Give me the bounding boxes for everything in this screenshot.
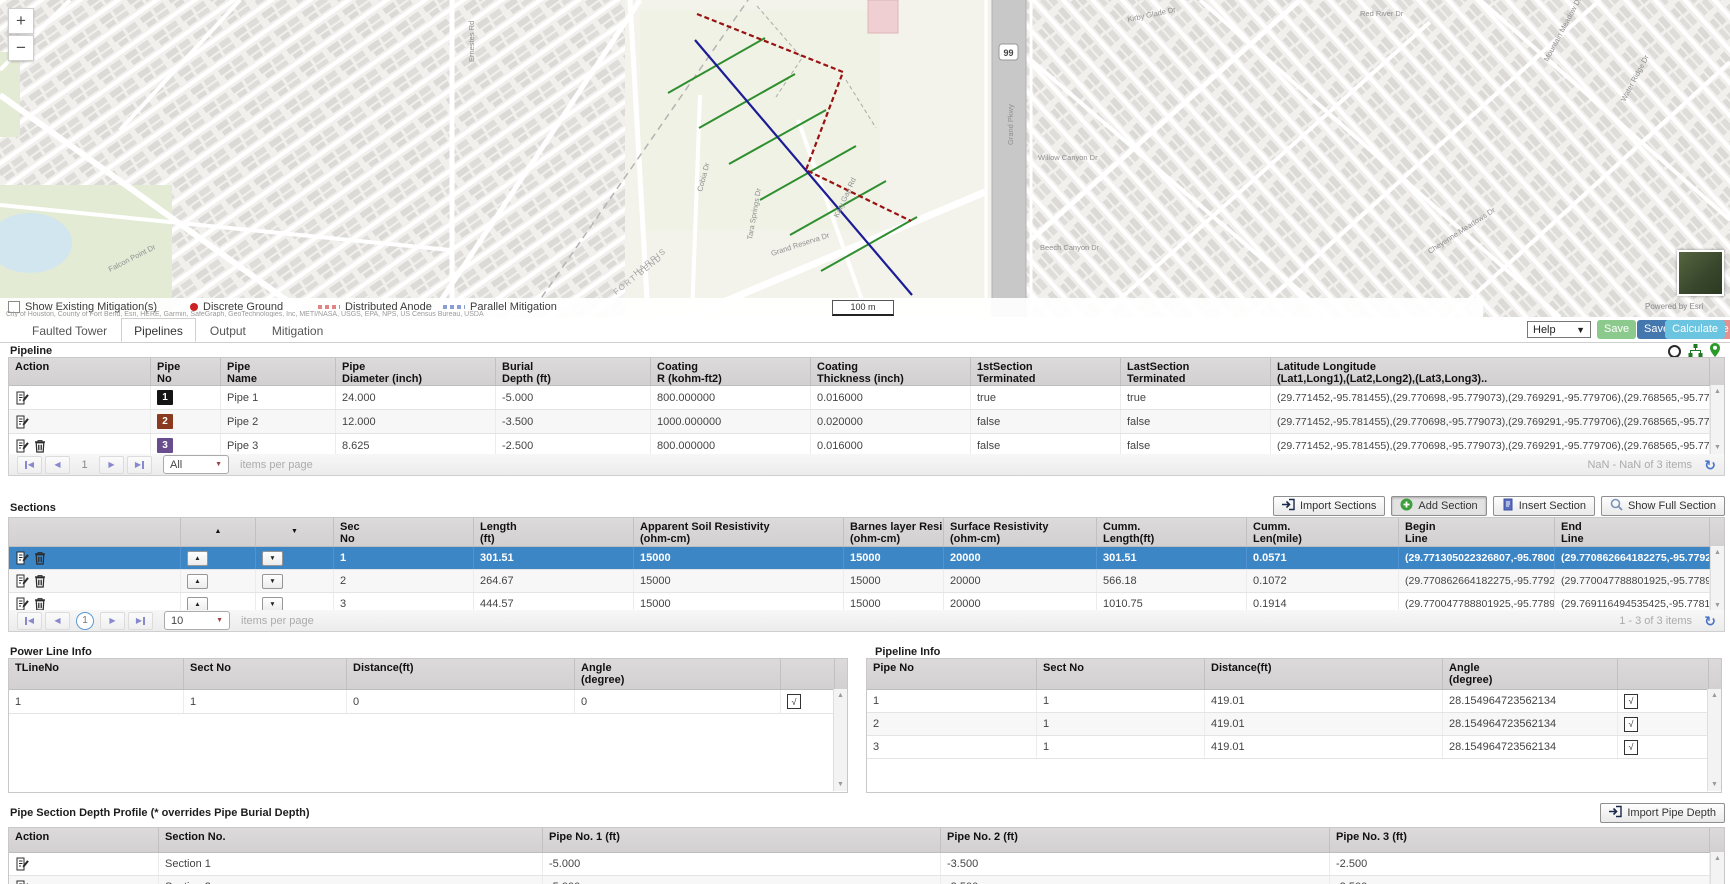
- column-header: Action: [9, 828, 159, 852]
- column-header: [9, 518, 181, 546]
- cell: 15000: [634, 570, 844, 592]
- column-header: TLineNo: [9, 659, 184, 689]
- column-header: Section No.: [159, 828, 543, 852]
- table-row[interactable]: 1100√: [9, 690, 847, 714]
- current-page[interactable]: 1: [73, 457, 96, 473]
- help-select[interactable]: Help ▼: [1527, 321, 1591, 338]
- cell: Section 1: [159, 853, 543, 875]
- column-header: PipeDiameter (inch): [336, 358, 496, 385]
- cell: (29.770862664182275,-95.77927667891853): [1399, 570, 1555, 592]
- scroll-down-arrow[interactable]: ▼: [834, 781, 847, 788]
- column-header: Cumm.Length(ft): [1097, 518, 1247, 546]
- pipe-no-cell: 2: [151, 410, 221, 433]
- edit-icon[interactable]: [15, 439, 29, 453]
- chevron-down-icon: ▼: [216, 617, 223, 624]
- table-row[interactable]: Section 2-5.000-3.500-2.500: [9, 876, 1724, 884]
- page-size-value: All: [170, 459, 182, 471]
- items-per-page-label: items per page: [241, 615, 314, 627]
- cell: -3.500: [941, 853, 1330, 875]
- map-canvas: 99 Ernestes RdCobia DrKaty Gap RdGrand P…: [0, 0, 1730, 317]
- tab-pipelines[interactable]: Pipelines: [121, 318, 196, 342]
- column-header: Pipe No. 2 (ft): [941, 828, 1330, 852]
- column-header: CoatingThickness (inch): [811, 358, 971, 385]
- scroll-up-arrow[interactable]: ▲: [1708, 692, 1721, 699]
- table-row[interactable]: Section 1-5.000-3.500-2.500: [9, 853, 1724, 876]
- import-sections-button[interactable]: Import Sections: [1273, 496, 1385, 516]
- insert-icon: [1502, 498, 1514, 514]
- map-attribution: City of Houston, County of Fort Bend, Es…: [6, 311, 1106, 317]
- table-header-row: ActionSection No.Pipe No. 1 (ft)Pipe No.…: [9, 828, 1724, 853]
- column-header: PipeName: [221, 358, 336, 385]
- edit-icon[interactable]: [15, 391, 29, 405]
- cell: 1: [867, 690, 1037, 712]
- cell: 419.01: [1205, 713, 1443, 735]
- cell: 20000: [944, 570, 1097, 592]
- column-header: ▲: [181, 518, 256, 546]
- cell: false: [1121, 410, 1271, 433]
- move-down-cell: ▼: [256, 570, 334, 592]
- app-root: 99 Ernestes RdCobia DrKaty Gap RdGrand P…: [0, 0, 1730, 884]
- mag-icon: [1610, 498, 1623, 514]
- cell: 24.000: [336, 386, 496, 409]
- cell: 15000: [634, 547, 844, 569]
- cell: 1: [1037, 713, 1205, 735]
- cell: true: [1121, 386, 1271, 409]
- pipe-no-cell: 1: [151, 386, 221, 409]
- insert-section-button[interactable]: Insert Section: [1493, 496, 1595, 516]
- cell: 1: [1037, 690, 1205, 712]
- column-header: Pipe No. 1 (ft): [543, 828, 941, 852]
- cell: 15000: [844, 547, 944, 569]
- action-cell: [9, 410, 151, 433]
- action-cell: [9, 853, 159, 875]
- column-header: Sect No: [184, 659, 347, 689]
- column-header: Cumm.Len(mile): [1247, 518, 1399, 546]
- powered-by-esri: Powered by Esri: [1645, 302, 1703, 311]
- table-row[interactable]: 1Pipe 124.000-5.000800.0000000.016000tru…: [9, 386, 1724, 410]
- vertical-scrollbar[interactable]: ▲▼: [1710, 852, 1724, 884]
- table-body: Section 1-5.000-3.500-2.500Section 2-5.0…: [9, 853, 1724, 884]
- column-header: SecNo: [334, 518, 474, 546]
- move-up-cell: ▲: [181, 547, 256, 569]
- column-header: CoatingR (kohm-ft2): [651, 358, 811, 385]
- pager-info: NaN - NaN of 3 items: [1587, 459, 1692, 471]
- locate-check-button[interactable]: √: [1624, 717, 1638, 732]
- column-header: Distance(ft): [1205, 659, 1443, 689]
- pipeline-table: ActionPipeNoPipeNamePipeDiameter (inch)B…: [8, 357, 1725, 456]
- map[interactable]: 99 Ernestes RdCobia DrKaty Gap RdGrand P…: [0, 0, 1730, 317]
- cell: 28.154964723562134: [1443, 690, 1618, 712]
- scroll-down-arrow[interactable]: ▼: [1711, 444, 1724, 451]
- highway-shield-label: 99: [1003, 48, 1013, 58]
- cell: 1000.000000: [651, 410, 811, 433]
- save-button[interactable]: Save: [1597, 320, 1636, 339]
- import-icon: [1282, 498, 1295, 514]
- cell: 3: [867, 736, 1037, 758]
- table-row[interactable]: 11419.0128.154964723562134√: [867, 690, 1721, 713]
- scroll-up-arrow[interactable]: ▲: [834, 692, 847, 699]
- scroll-up-arrow[interactable]: ▲: [1711, 549, 1724, 556]
- edit-icon[interactable]: [15, 551, 29, 565]
- import-pipe-depth-label: Import Pipe Depth: [1627, 807, 1716, 819]
- move-down-button[interactable]: ▼: [262, 551, 283, 566]
- cell: 28.154964723562134: [1443, 713, 1618, 735]
- next-page-button[interactable]: ▶: [99, 456, 124, 474]
- cell: 264.67: [474, 570, 634, 592]
- column-header: Angle(degree): [575, 659, 781, 689]
- table-header-row: ▲▼SecNoLength(ft)Apparent Soil Resistivi…: [9, 518, 1724, 547]
- last-page-button[interactable]: ▶: [128, 612, 153, 630]
- add-section-button[interactable]: Add Section: [1391, 496, 1486, 516]
- items-per-page-label: items per page: [240, 459, 313, 471]
- sections-section-title: Sections: [10, 502, 56, 514]
- edit-icon[interactable]: [15, 880, 29, 884]
- action-cell: [9, 547, 181, 569]
- cell: 301.51: [1097, 547, 1247, 569]
- locate-check-button[interactable]: √: [1624, 740, 1638, 755]
- cell: 800.000000: [651, 386, 811, 409]
- action-cell: [9, 570, 181, 592]
- distributed-anode-marker: [318, 305, 340, 309]
- edit-icon[interactable]: [15, 415, 29, 429]
- street-label: Grand Pkwy: [1006, 104, 1015, 145]
- cell: 15000: [844, 570, 944, 592]
- street-label: Willow Canyon Dr: [1038, 153, 1098, 162]
- cell: -3.500: [941, 876, 1330, 884]
- scroll-up-arrow[interactable]: ▲: [1711, 388, 1724, 395]
- column-header: PipeNo: [151, 358, 221, 385]
- cell: Section 2: [159, 876, 543, 884]
- table-header-row: Pipe NoSect NoDistance(ft)Angle(degree): [867, 659, 1721, 690]
- cell: -5.000: [496, 386, 651, 409]
- cell: -2.500: [1330, 853, 1710, 875]
- cell: 566.18: [1097, 570, 1247, 592]
- cell: 0.016000: [811, 386, 971, 409]
- previous-page-button[interactable]: ◀: [45, 612, 70, 630]
- vertical-scrollbar[interactable]: ▲▼: [833, 689, 847, 791]
- scroll-down-arrow[interactable]: ▼: [1708, 781, 1721, 788]
- move-up-cell: ▲: [181, 570, 256, 592]
- cell: 1: [184, 690, 347, 713]
- column-header: [781, 659, 835, 689]
- add-section-button-label: Add Section: [1418, 500, 1477, 512]
- table-row[interactable]: ▲▼2264.67150001500020000566.180.1072(29.…: [9, 570, 1724, 593]
- first-page-button[interactable]: ◀: [17, 612, 42, 630]
- power-line-info-table: TLineNoSect NoDistance(ft)Angle(degree)1…: [8, 658, 848, 793]
- sections-table: ▲▼SecNoLength(ft)Apparent Soil Resistivi…: [8, 517, 1725, 614]
- cell: 301.51: [474, 547, 634, 569]
- edit-icon[interactable]: [15, 574, 29, 588]
- cell: 2: [867, 713, 1037, 735]
- cell: 20000: [944, 547, 1097, 569]
- sections-pager: ◀◀1▶▶10▼items per page1 - 3 of 3 items↻: [8, 610, 1725, 632]
- last-page-button[interactable]: ▶: [127, 456, 152, 474]
- import-sections-button-label: Import Sections: [1300, 500, 1376, 512]
- map-inset-thumbnail[interactable]: [1677, 250, 1724, 296]
- cell: true: [971, 386, 1121, 409]
- cell: 12.000: [336, 410, 496, 433]
- depth-profile-title: Pipe Section Depth Profile (* overrides …: [10, 807, 310, 819]
- table-row[interactable]: 21419.0128.154964723562134√: [867, 713, 1721, 736]
- cell: 0: [575, 690, 781, 713]
- tab-mitigation[interactable]: Mitigation: [260, 319, 335, 343]
- column-header: Surface Resistivity(ohm-cm): [944, 518, 1097, 546]
- scroll-down-arrow[interactable]: ▼: [1711, 602, 1724, 609]
- current-page[interactable]: 1: [76, 612, 94, 630]
- cell: -3.500: [496, 410, 651, 433]
- locate-cell: √: [1618, 690, 1709, 712]
- vertical-scrollbar[interactable]: ▲▼: [1707, 689, 1721, 791]
- table-header-row: TLineNoSect NoDistance(ft)Angle(degree): [9, 659, 847, 690]
- move-up-button[interactable]: ▲: [187, 551, 208, 566]
- cell: (29.771452,-95.781455),(29.770698,-95.77…: [1271, 410, 1710, 433]
- delete-icon[interactable]: [34, 439, 46, 453]
- cell: -5.000: [543, 853, 941, 875]
- pipe-no-badge: 3: [157, 438, 173, 453]
- cell: 2: [334, 570, 474, 592]
- column-header: Latitude Longitude(Lat1,Long1),(Lat2,Lon…: [1271, 358, 1710, 385]
- cell: Pipe 1: [221, 386, 336, 409]
- cell: 0.1072: [1247, 570, 1399, 592]
- locate-cell: √: [1618, 713, 1709, 735]
- action-cell: [9, 386, 151, 409]
- insert-section-button-label: Insert Section: [1519, 500, 1586, 512]
- first-page-button[interactable]: ◀: [17, 456, 42, 474]
- table-header-row: ActionPipeNoPipeNamePipeDiameter (inch)B…: [9, 358, 1724, 386]
- locate-cell: √: [781, 690, 835, 713]
- edit-icon[interactable]: [15, 857, 29, 871]
- pager-info: 1 - 3 of 3 items: [1619, 615, 1692, 627]
- table-body: 11419.0128.154964723562134√21419.0128.15…: [867, 690, 1721, 792]
- calculate-button[interactable]: Calculate: [1665, 320, 1725, 339]
- import-icon: [1609, 805, 1622, 821]
- column-header: Pipe No. 3 (ft): [1330, 828, 1710, 852]
- cell: 419.01: [1205, 690, 1443, 712]
- scroll-up-arrow[interactable]: ▲: [1711, 855, 1724, 862]
- cell: 0.0571: [1247, 547, 1399, 569]
- cell: 1: [9, 690, 184, 713]
- table-body: ▲▼1301.51150001500020000301.510.0571(29.…: [9, 547, 1724, 613]
- locate-check-button[interactable]: √: [787, 694, 801, 709]
- vertical-scrollbar[interactable]: ▲▼: [1710, 385, 1724, 454]
- column-header: Pipe No: [867, 659, 1037, 689]
- delete-icon[interactable]: [34, 597, 46, 611]
- chevron-down-icon: ▼: [1576, 325, 1585, 335]
- column-header: Length(ft): [474, 518, 634, 546]
- column-header: Action: [9, 358, 151, 385]
- column-header: BeginLine: [1399, 518, 1555, 546]
- street-label: Red River Dr: [1360, 9, 1404, 18]
- edit-icon[interactable]: [15, 597, 29, 611]
- power-line-info-title: Power Line Info: [10, 646, 92, 658]
- vertical-scrollbar[interactable]: ▲▼: [1710, 546, 1724, 612]
- cell: 419.01: [1205, 736, 1443, 758]
- column-header: [1618, 659, 1709, 689]
- column-header: Sect No: [1037, 659, 1205, 689]
- cell: false: [971, 410, 1121, 433]
- pipe-no-badge: 2: [157, 414, 173, 429]
- delete-icon[interactable]: [34, 551, 46, 565]
- cell: (29.771452,-95.781455),(29.770698,-95.77…: [1271, 386, 1710, 409]
- delete-icon[interactable]: [34, 574, 46, 588]
- cell: 1: [1037, 736, 1205, 758]
- table-row[interactable]: ▲▼1301.51150001500020000301.510.0571(29.…: [9, 547, 1724, 570]
- cell: 1: [334, 547, 474, 569]
- locate-cell: √: [1618, 736, 1709, 758]
- parallel-mitigation-marker: [443, 305, 465, 309]
- cell: -2.500: [1330, 876, 1710, 884]
- column-header: LastSectionTerminated: [1121, 358, 1271, 385]
- move-up-button[interactable]: ▲: [187, 574, 208, 589]
- cell: (29.770047788801925,-95.77895481383229): [1555, 570, 1710, 592]
- cell: -5.000: [543, 876, 941, 884]
- refresh-icon[interactable]: ↻: [1704, 614, 1716, 628]
- chevron-down-icon: ▼: [215, 461, 222, 468]
- column-header: Apparent Soil Resistivity(ohm-cm): [634, 518, 844, 546]
- pipeline-info-table: Pipe NoSect NoDistance(ft)Angle(degree)1…: [866, 658, 1722, 793]
- tab-output[interactable]: Output: [198, 319, 258, 343]
- page-size-select[interactable]: All▼: [163, 455, 229, 474]
- column-header: ▼: [256, 518, 334, 546]
- import-pipe-depth-button[interactable]: Import Pipe Depth: [1600, 803, 1725, 823]
- previous-page-button[interactable]: ◀: [45, 456, 70, 474]
- column-header: BurialDepth (ft): [496, 358, 651, 385]
- cell: 28.154964723562134: [1443, 736, 1618, 758]
- locate-check-button[interactable]: √: [1624, 694, 1638, 709]
- cell: Pipe 2: [221, 410, 336, 433]
- add-icon: [1400, 498, 1413, 514]
- table-row[interactable]: 31419.0128.154964723562134√: [867, 736, 1721, 759]
- street-label: Ernestes Rd: [467, 21, 476, 62]
- map-zoom-out-button[interactable]: −: [8, 35, 34, 61]
- action-cell: [9, 876, 159, 884]
- show-full-section-button[interactable]: Show Full Section: [1601, 496, 1725, 516]
- table-body: 1100√: [9, 690, 847, 792]
- street-label: Beech Canyon Dr: [1040, 243, 1100, 252]
- table-body: 1Pipe 124.000-5.000800.0000000.016000tru…: [9, 386, 1724, 455]
- pipe-no-badge: 1: [157, 390, 173, 405]
- pipeline-info-title: Pipeline Info: [875, 646, 940, 658]
- discrete-ground-marker: [190, 303, 198, 311]
- column-header: Barnes layer Resistivity(ohm-cm): [844, 518, 944, 546]
- depth-profile-table: ActionSection No.Pipe No. 1 (ft)Pipe No.…: [8, 827, 1725, 884]
- move-down-button[interactable]: ▼: [262, 574, 283, 589]
- tab-bar: Faulted TowerPipelinesOutputMitigation: [0, 318, 1730, 343]
- table-row[interactable]: 2Pipe 212.000-3.5001000.0000000.020000fa…: [9, 410, 1724, 434]
- column-header: EndLine: [1555, 518, 1710, 546]
- cell: 0: [347, 690, 575, 713]
- cell: (29.770862664182275,-95.77927667891853): [1555, 547, 1710, 569]
- page-size-select[interactable]: 10▼: [164, 611, 230, 630]
- column-header: Distance(ft): [347, 659, 575, 689]
- column-header: 1stSectionTerminated: [971, 358, 1121, 385]
- tab-faulted-tower[interactable]: Faulted Tower: [20, 319, 119, 343]
- cell: (29.771305022326807,-95.78000087535352): [1399, 547, 1555, 569]
- show-full-section-button-label: Show Full Section: [1628, 500, 1716, 512]
- pipeline-section-title: Pipeline: [10, 345, 52, 357]
- map-zoom-in-button[interactable]: +: [8, 8, 34, 34]
- pipeline-pager: ◀◀1▶▶All▼items per pageNaN - NaN of 3 it…: [8, 454, 1725, 476]
- move-down-cell: ▼: [256, 547, 334, 569]
- column-header: Angle(degree): [1443, 659, 1618, 689]
- refresh-icon[interactable]: ↻: [1704, 458, 1716, 472]
- help-label: Help: [1533, 324, 1556, 336]
- page-size-value: 10: [171, 615, 183, 627]
- next-page-button[interactable]: ▶: [100, 612, 125, 630]
- cell: 0.020000: [811, 410, 971, 433]
